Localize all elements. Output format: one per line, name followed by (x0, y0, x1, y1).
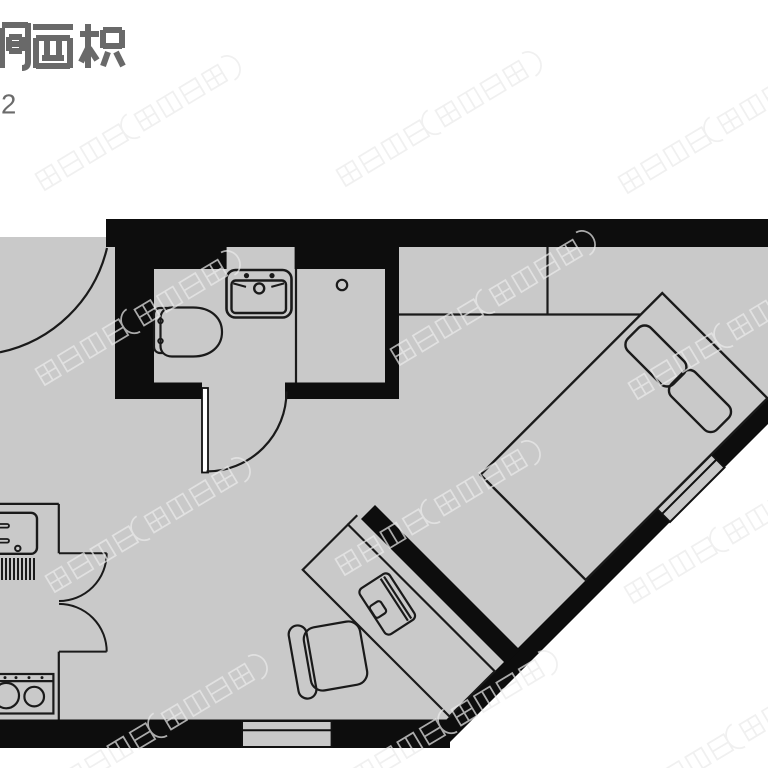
svg-text:2: 2 (1, 89, 16, 120)
